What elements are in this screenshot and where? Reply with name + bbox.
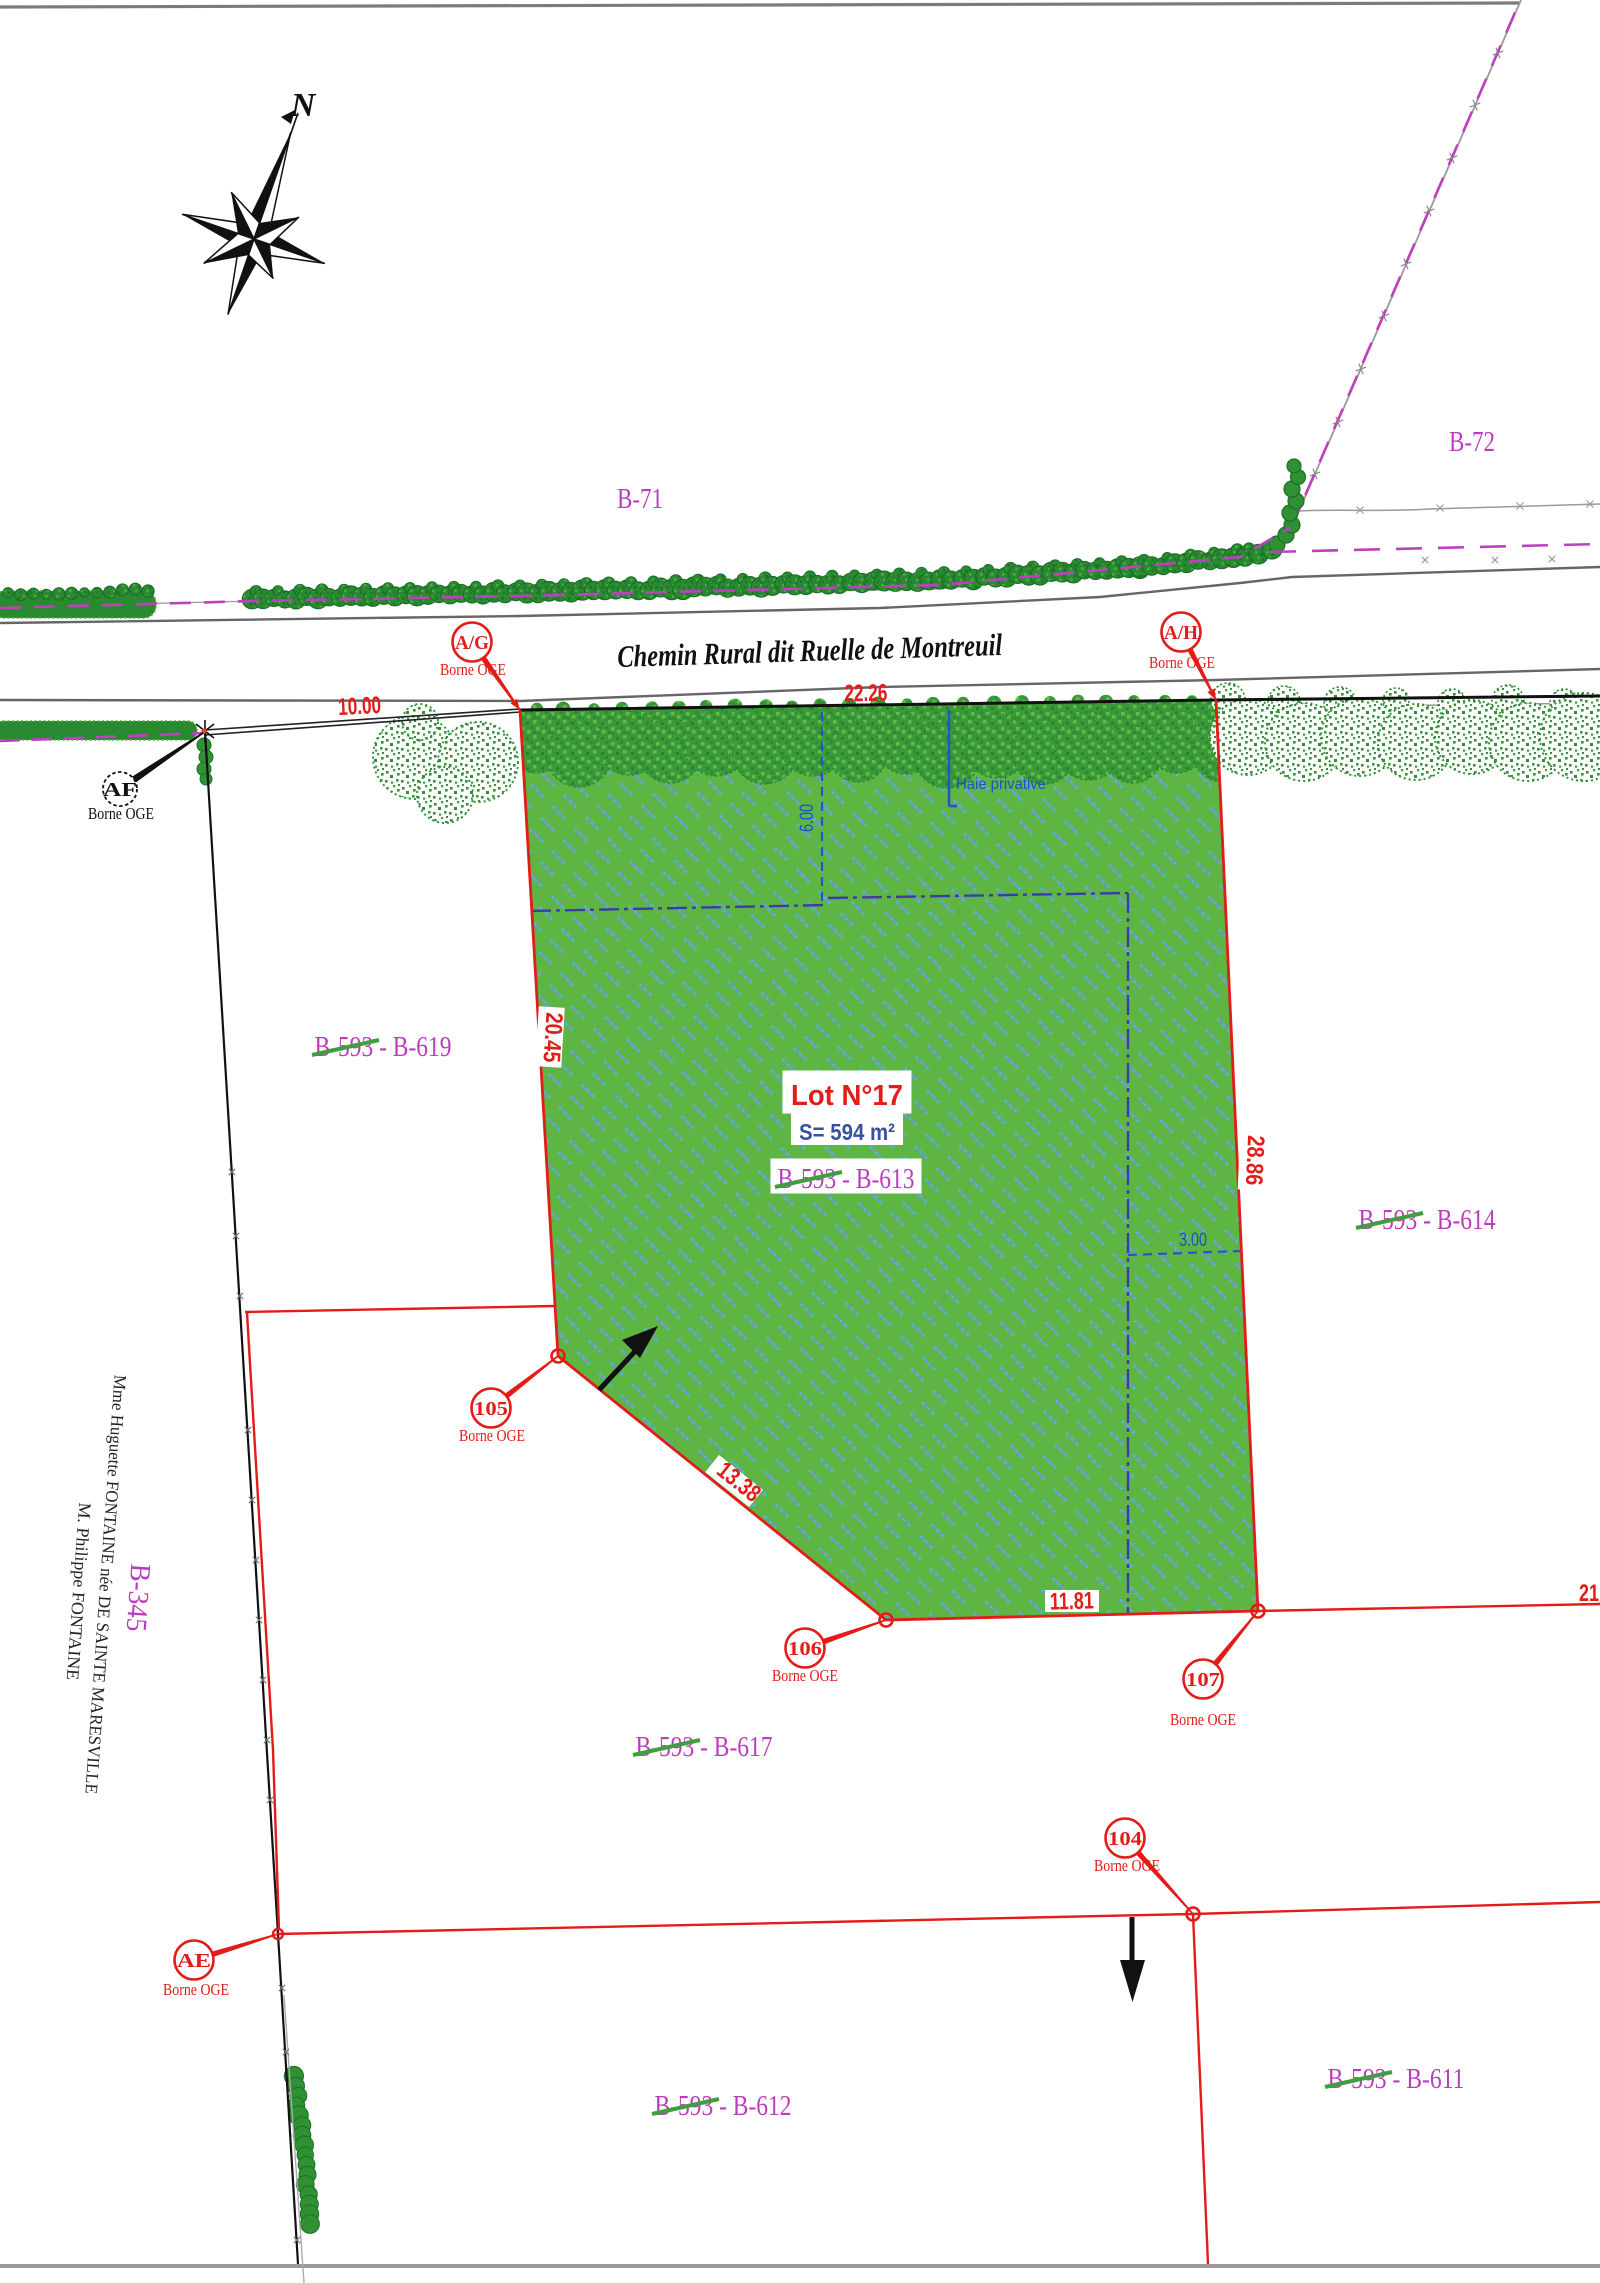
svg-text:B-593 - B-613: B-593 - B-613 [778, 1163, 915, 1195]
svg-text:105: 105 [474, 1398, 508, 1420]
svg-text:3.00: 3.00 [1179, 1230, 1207, 1251]
svg-text:Borne OGE: Borne OGE [1094, 1856, 1160, 1875]
svg-text:A/G: A/G [455, 632, 489, 654]
svg-text:Borne OGE: Borne OGE [163, 1980, 229, 1999]
svg-text:28.86: 28.86 [1240, 1135, 1269, 1186]
svg-text:B-72: B-72 [1449, 426, 1495, 458]
svg-text:22.26: 22.26 [844, 680, 887, 708]
svg-text:20.45: 20.45 [538, 1012, 568, 1064]
svg-text:Borne OGE: Borne OGE [1149, 653, 1215, 672]
svg-text:11.81: 11.81 [1049, 1587, 1094, 1615]
svg-text:Borne OGE: Borne OGE [772, 1666, 838, 1685]
svg-text:Borne OGE: Borne OGE [88, 804, 154, 823]
svg-text:Borne OGE: Borne OGE [459, 1426, 525, 1445]
svg-text:Haie privative: Haie privative [956, 776, 1046, 793]
svg-text:B-345: B-345 [120, 1563, 157, 1633]
svg-text:AE: AE [177, 1950, 211, 1972]
svg-text:Lot N°17: Lot N°17 [791, 1080, 903, 1112]
svg-text:B-593 - B-617: B-593 - B-617 [636, 1731, 773, 1763]
svg-text:106: 106 [788, 1638, 822, 1660]
svg-text:A/H: A/H [1164, 622, 1198, 644]
svg-text:S= 594 m²: S= 594 m² [799, 1119, 895, 1145]
svg-text:Borne OGE: Borne OGE [440, 660, 506, 679]
svg-text:B-593 - B-611: B-593 - B-611 [1328, 2063, 1465, 2095]
svg-text:107: 107 [1186, 1669, 1220, 1691]
svg-text:B-71: B-71 [617, 483, 663, 515]
svg-text:B-593 - B-612: B-593 - B-612 [655, 2090, 792, 2122]
svg-text:6.00: 6.00 [797, 804, 818, 832]
svg-text:Borne OGE: Borne OGE [1170, 1710, 1236, 1729]
svg-text:21: 21 [1579, 1580, 1599, 1607]
svg-text:N: N [290, 87, 317, 124]
svg-text:104: 104 [1108, 1828, 1142, 1850]
svg-text:10.00: 10.00 [337, 692, 381, 721]
svg-text:AF: AF [103, 779, 137, 801]
svg-text:B-593 - B-619: B-593 - B-619 [315, 1031, 452, 1063]
svg-text:B-593 - B-614: B-593 - B-614 [1359, 1204, 1496, 1236]
